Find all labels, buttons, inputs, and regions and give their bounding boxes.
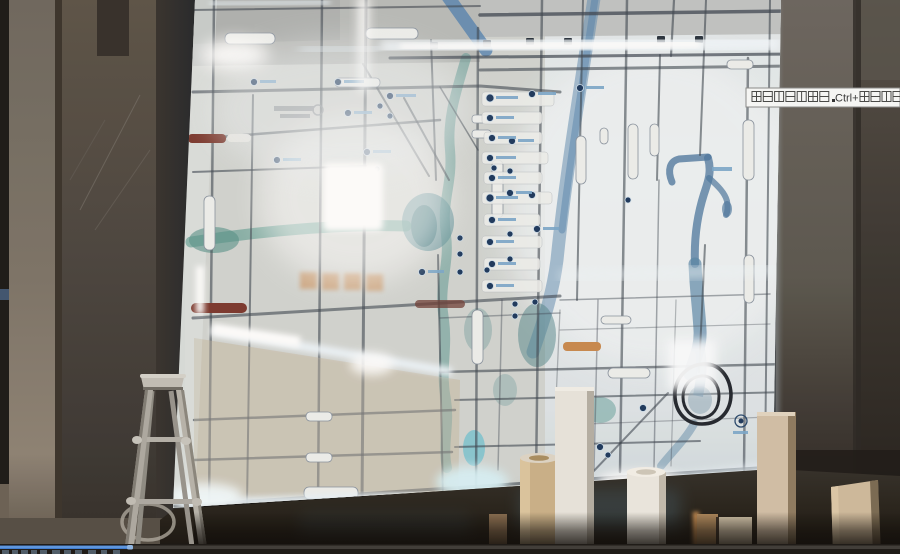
svg-text:Ctrl+: Ctrl+ <box>835 93 859 105</box>
